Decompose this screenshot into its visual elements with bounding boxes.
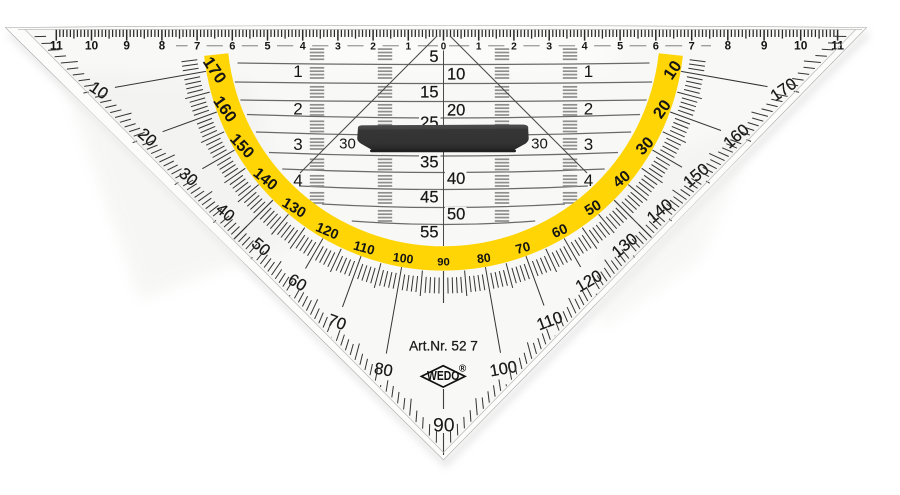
svg-text:1: 1: [406, 41, 412, 52]
svg-text:2: 2: [370, 41, 376, 52]
svg-text:8: 8: [159, 40, 166, 52]
svg-text:40: 40: [447, 170, 465, 188]
svg-text:®: ®: [459, 364, 467, 375]
svg-text:WEDO: WEDO: [427, 368, 459, 383]
svg-text:Art.Nr. 52 7: Art.Nr. 52 7: [409, 339, 478, 354]
svg-text:5: 5: [264, 40, 270, 52]
svg-text:9: 9: [123, 38, 130, 52]
svg-text:3: 3: [335, 40, 341, 52]
svg-text:2: 2: [293, 100, 302, 119]
svg-text:1: 1: [476, 41, 482, 52]
svg-text:4: 4: [300, 40, 306, 52]
svg-text:1: 1: [584, 62, 593, 81]
svg-text:3: 3: [293, 135, 302, 154]
svg-text:10: 10: [447, 65, 465, 83]
svg-text:2: 2: [511, 41, 517, 52]
svg-text:45: 45: [420, 188, 438, 206]
svg-text:3: 3: [584, 135, 593, 154]
svg-text:55: 55: [420, 223, 438, 241]
svg-text:9: 9: [761, 38, 768, 52]
svg-text:30: 30: [531, 135, 548, 152]
svg-text:6: 6: [229, 40, 235, 52]
svg-text:35: 35: [420, 153, 438, 171]
svg-text:4: 4: [582, 40, 588, 52]
svg-text:6: 6: [653, 40, 659, 52]
svg-text:4: 4: [584, 171, 593, 190]
svg-text:3: 3: [546, 40, 552, 52]
svg-text:10: 10: [85, 38, 99, 52]
svg-text:2: 2: [584, 100, 593, 119]
svg-text:8: 8: [725, 40, 732, 52]
svg-text:90: 90: [433, 414, 455, 436]
svg-text:5: 5: [617, 40, 623, 52]
svg-text:90: 90: [437, 257, 450, 269]
svg-text:15: 15: [420, 83, 438, 101]
svg-text:30: 30: [339, 135, 356, 152]
svg-text:5: 5: [429, 48, 438, 66]
svg-text:10: 10: [794, 38, 808, 52]
svg-text:7: 7: [689, 40, 695, 52]
svg-text:20: 20: [447, 101, 465, 119]
svg-text:80: 80: [476, 251, 492, 267]
svg-text:100: 100: [392, 250, 414, 267]
svg-text:50: 50: [447, 205, 465, 223]
svg-text:1: 1: [293, 62, 302, 81]
svg-text:7: 7: [194, 40, 200, 52]
